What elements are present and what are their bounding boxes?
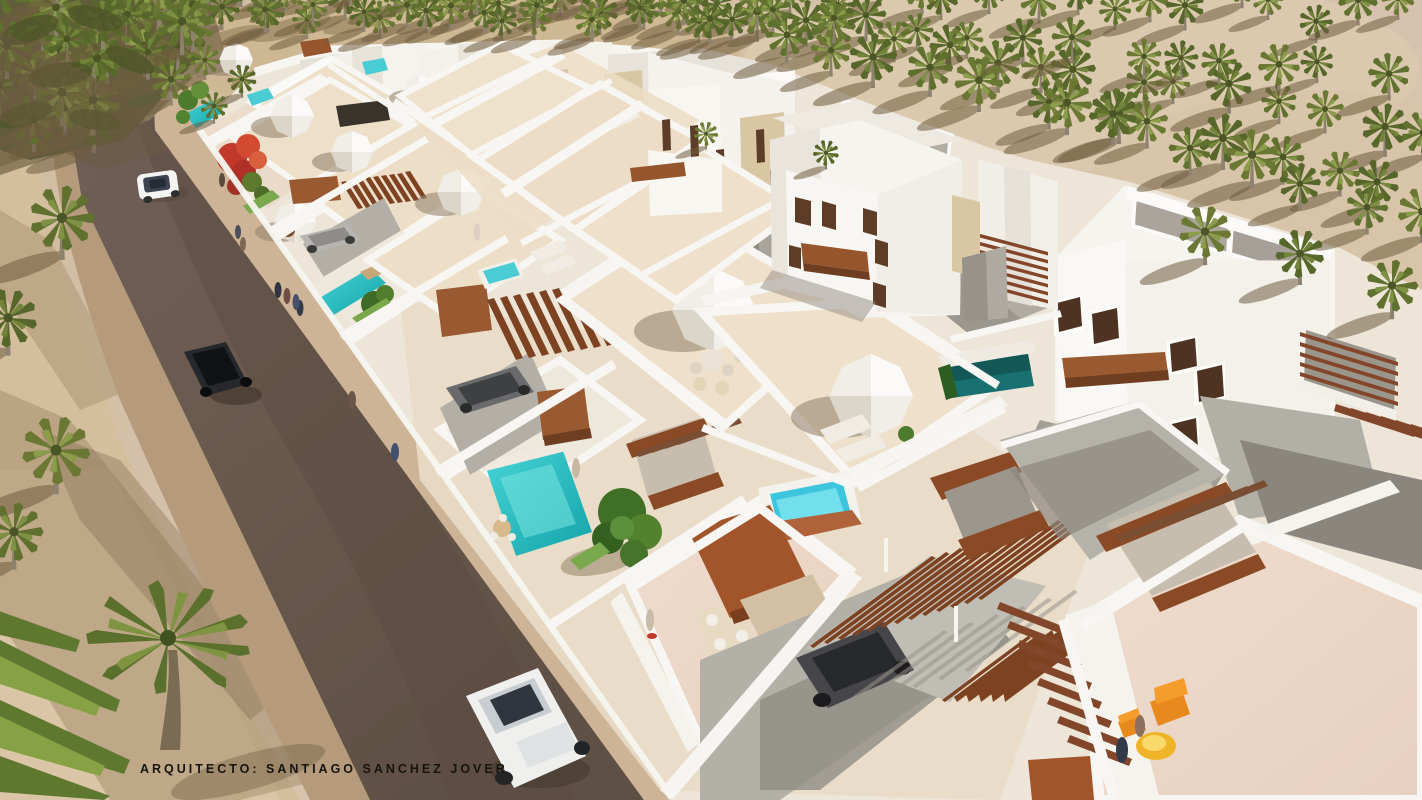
svg-text:ARQUITECTO: SANTIAGO SANCHEZ J: ARQUITECTO: SANTIAGO SANCHEZ JOVER — [140, 762, 508, 776]
